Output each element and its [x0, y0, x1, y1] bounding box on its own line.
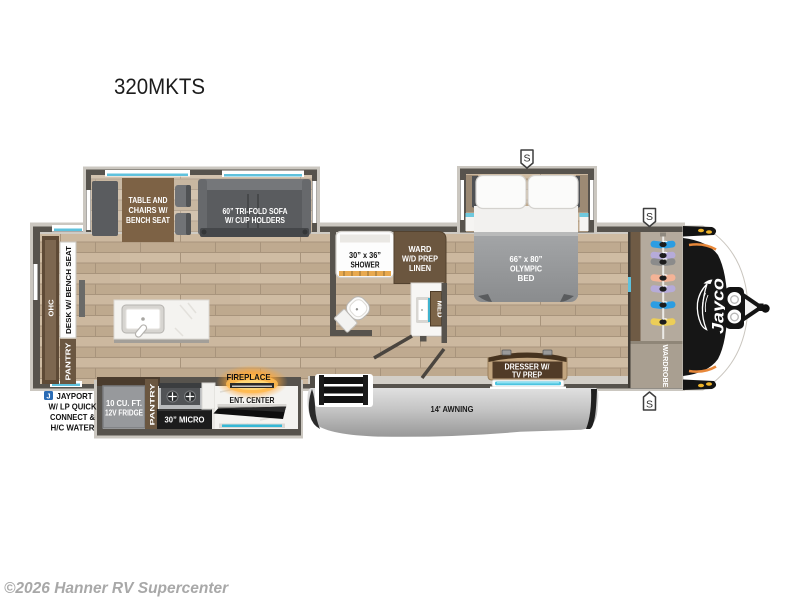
svg-text:DESK W/ BENCH SEAT: DESK W/ BENCH SEAT: [64, 246, 73, 334]
svg-text:OHC: OHC: [46, 299, 55, 317]
svg-text:PANTRY: PANTRY: [149, 383, 156, 426]
svg-text:CONNECT &: CONNECT &: [50, 412, 95, 422]
svg-text:CHAIRS W/: CHAIRS W/: [129, 206, 169, 215]
svg-text:TABLE AND: TABLE AND: [129, 196, 168, 205]
svg-text:W/ LP QUICK: W/ LP QUICK: [49, 402, 98, 412]
svg-text:OLYMPIC: OLYMPIC: [510, 265, 542, 274]
svg-text:H/C WATER: H/C WATER: [51, 423, 95, 433]
svg-text:320MKTS: 320MKTS: [114, 74, 205, 99]
svg-text:12V FRIDGE: 12V FRIDGE: [105, 409, 143, 418]
svg-text:BED: BED: [518, 274, 535, 283]
svg-text:©2026 Hanner RV Supercenter: ©2026 Hanner RV Supercenter: [4, 580, 229, 597]
svg-text:S: S: [646, 211, 653, 223]
svg-text:S: S: [646, 399, 653, 411]
svg-text:30” MICRO: 30” MICRO: [165, 416, 205, 425]
svg-text:W/ CUP HOLDERS: W/ CUP HOLDERS: [225, 216, 286, 225]
svg-text:JAYPORT: JAYPORT: [57, 391, 94, 401]
svg-text:WARD: WARD: [409, 245, 432, 254]
svg-text:W/D PREP: W/D PREP: [402, 255, 439, 264]
svg-text:BENCH SEAT: BENCH SEAT: [126, 216, 170, 225]
svg-text:SHOWER: SHOWER: [351, 260, 380, 270]
svg-text:Jayco: Jayco: [709, 278, 728, 334]
svg-text:FIREPLACE: FIREPLACE: [227, 372, 271, 382]
svg-text:WARDROBE: WARDROBE: [661, 345, 668, 388]
svg-text:10 CU. FT.: 10 CU. FT.: [106, 399, 142, 408]
svg-text:60” TRI-FOLD SOFA: 60” TRI-FOLD SOFA: [223, 207, 288, 216]
svg-text:LINEN: LINEN: [409, 264, 431, 273]
svg-text:TV PREP: TV PREP: [512, 371, 543, 380]
svg-text:PANTRY: PANTRY: [65, 342, 72, 380]
svg-text:MED: MED: [436, 301, 443, 318]
svg-text:14' AWNING: 14' AWNING: [431, 404, 474, 414]
svg-text:J: J: [46, 392, 50, 401]
svg-text:S: S: [523, 153, 530, 165]
svg-text:30” x 36”: 30” x 36”: [349, 250, 381, 260]
svg-text:66” x 80”: 66” x 80”: [510, 255, 543, 264]
